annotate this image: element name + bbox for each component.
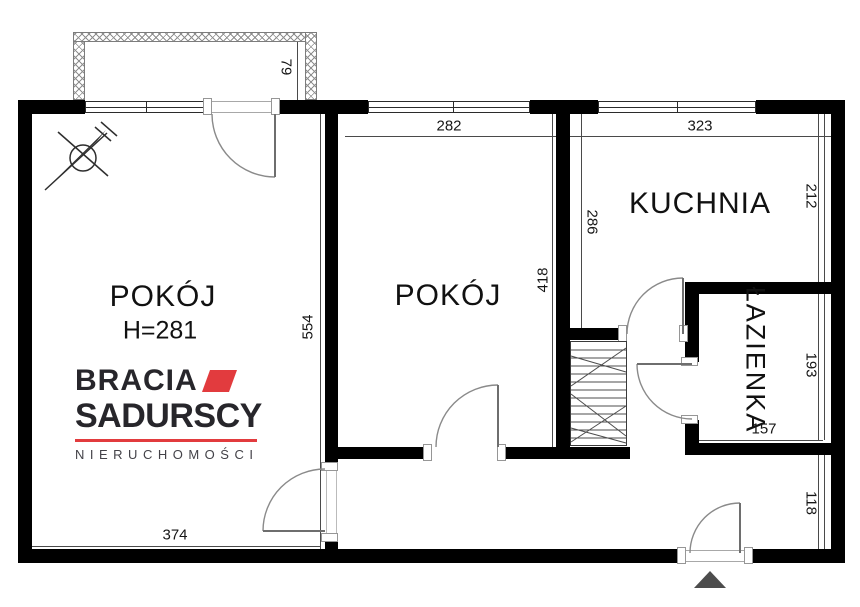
logo-tagline: NIERUCHOMOŚCI bbox=[75, 447, 262, 462]
room-middle-door-arc bbox=[436, 385, 498, 447]
door-jamb bbox=[744, 547, 753, 564]
wall-bathroom-bottom bbox=[685, 443, 831, 455]
wall-kitchen-nook bbox=[556, 328, 625, 340]
wall-bathroom-left bbox=[685, 282, 699, 362]
window-room-middle bbox=[368, 101, 530, 113]
dimension-line-212b bbox=[824, 114, 825, 282]
logo-brand-line1: BRACIA bbox=[75, 366, 198, 396]
hall-door-arc bbox=[263, 469, 325, 531]
window-pane-line bbox=[369, 107, 529, 108]
door-jamb bbox=[618, 325, 627, 342]
dimension-line-282 bbox=[345, 136, 556, 137]
door-jamb bbox=[679, 325, 688, 342]
room-label-pokoj-left: POKÓJ bbox=[110, 280, 217, 314]
dim-kitchen-left-height: 286 bbox=[584, 209, 601, 234]
dim-room-middle-width: 282 bbox=[436, 118, 461, 135]
door-swing-arcs bbox=[212, 114, 740, 553]
hall-door-opening bbox=[326, 470, 337, 534]
wall-segment bbox=[274, 100, 368, 114]
balcony-railing-left bbox=[73, 32, 85, 100]
window-room-left bbox=[85, 101, 207, 113]
door-jamb bbox=[677, 547, 686, 564]
dim-bathroom-width: 157 bbox=[751, 421, 776, 438]
door-jamb bbox=[321, 462, 338, 471]
wall-hall-top bbox=[338, 447, 430, 459]
wall-room-middle-kitchen bbox=[556, 114, 570, 455]
window-mullion bbox=[677, 102, 678, 112]
window-mullion bbox=[146, 102, 147, 112]
entrance-marker-triangle bbox=[694, 571, 726, 588]
dimension-line-157 bbox=[697, 440, 823, 441]
window-kitchen bbox=[598, 101, 756, 113]
dimension-line-193b bbox=[824, 294, 825, 440]
door-jamb bbox=[681, 415, 698, 424]
door-jamb bbox=[203, 98, 212, 115]
balcony-railing-right bbox=[305, 32, 317, 100]
dimension-line-374 bbox=[32, 546, 320, 547]
kitchen-door-arc bbox=[627, 278, 683, 334]
dimension-line-418 bbox=[552, 114, 553, 447]
dim-kitchen-width: 323 bbox=[687, 118, 712, 135]
wall-wardrobe-bottom bbox=[556, 447, 630, 459]
dimension-line-79 bbox=[297, 42, 298, 100]
floor-plan: POKÓJ H=281 POKÓJ KUCHNIA ŁAZIENKA 79 28… bbox=[0, 0, 860, 607]
dimension-line-118b bbox=[824, 455, 825, 549]
wall-segment bbox=[325, 541, 338, 553]
door-jamb bbox=[423, 444, 432, 461]
logo-red-rule bbox=[75, 439, 257, 442]
dim-room-left-width: 374 bbox=[162, 527, 187, 544]
balcony-door-opening bbox=[212, 101, 271, 113]
agency-logo: BRACIA SADURSCY NIERUCHOMOŚCI bbox=[75, 366, 262, 462]
door-jamb bbox=[497, 444, 506, 461]
entrance-door-arc bbox=[690, 503, 740, 553]
logo-red-parallelogram bbox=[202, 370, 237, 392]
wall-right-exterior bbox=[831, 100, 845, 563]
wall-bottom-exterior bbox=[18, 549, 685, 563]
north-arrow-icon bbox=[45, 122, 117, 190]
room-label-pokoj-middle: POKÓJ bbox=[395, 279, 502, 313]
wall-hall-top bbox=[500, 447, 556, 459]
balcony-railing-top bbox=[73, 32, 317, 42]
window-mullion bbox=[453, 102, 454, 112]
entrance-door-opening bbox=[686, 550, 744, 562]
wall-bottom-exterior bbox=[748, 549, 845, 563]
door-jamb bbox=[271, 98, 280, 115]
balcony-door-arc bbox=[212, 114, 275, 177]
room-label-kuchnia: KUCHNIA bbox=[629, 187, 771, 221]
dim-kitchen-right-height: 212 bbox=[803, 183, 820, 208]
dim-hall-height: 118 bbox=[803, 491, 820, 515]
door-jamb bbox=[681, 357, 698, 366]
wall-room-left-divider bbox=[325, 114, 338, 462]
logo-brand-line2: SADURSCY bbox=[75, 399, 262, 433]
wall-segment bbox=[530, 100, 598, 114]
wall-left-exterior bbox=[18, 100, 32, 563]
dimension-line-286 bbox=[581, 114, 582, 330]
dim-room-left-height: 554 bbox=[300, 314, 317, 339]
room-label-lazienka: ŁAZIENKA bbox=[740, 287, 771, 434]
dim-room-middle-height: 418 bbox=[535, 267, 552, 292]
dimension-line-323 bbox=[570, 136, 831, 137]
bathroom-door-arc bbox=[637, 364, 692, 419]
dimension-line-554 bbox=[320, 114, 321, 549]
wardrobe-symbol bbox=[570, 341, 627, 446]
door-jamb bbox=[321, 533, 338, 542]
dim-bathroom-height: 193 bbox=[803, 352, 820, 377]
dim-balcony-depth: 79 bbox=[278, 59, 295, 76]
room-height-note: H=281 bbox=[123, 317, 197, 346]
